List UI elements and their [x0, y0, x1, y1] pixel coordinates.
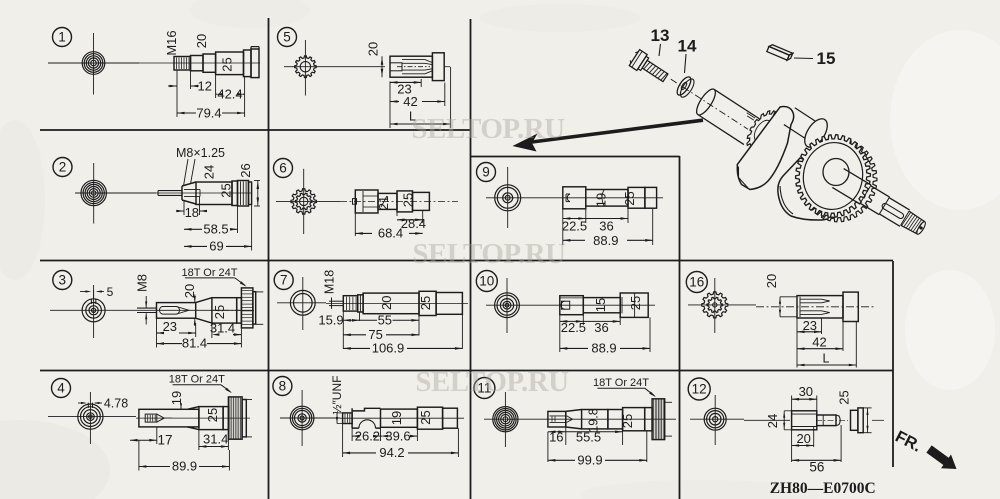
svg-text:19: 19	[169, 391, 184, 405]
svg-text:69: 69	[209, 239, 223, 254]
svg-text:20: 20	[796, 431, 810, 446]
svg-text:36: 36	[599, 219, 613, 234]
svg-text:89.9: 89.9	[172, 459, 197, 474]
svg-text:25: 25	[220, 57, 235, 71]
svg-text:68.4: 68.4	[378, 226, 403, 241]
svg-text:88.9: 88.9	[593, 233, 618, 248]
svg-text:9: 9	[482, 165, 490, 180]
svg-text:17: 17	[157, 432, 172, 447]
svg-text:25: 25	[212, 305, 227, 319]
svg-text:ZH80—E0700C: ZH80—E0700C	[770, 480, 876, 497]
svg-text:M8: M8	[135, 274, 150, 292]
svg-text:4.78: 4.78	[104, 397, 128, 411]
svg-text:22.5: 22.5	[561, 320, 586, 335]
svg-text:88.9: 88.9	[591, 341, 616, 356]
svg-text:22.5: 22.5	[562, 219, 587, 234]
svg-text:15: 15	[817, 49, 836, 68]
svg-text:16: 16	[689, 275, 704, 290]
svg-text:23: 23	[803, 318, 817, 333]
svg-text:26.2: 26.2	[355, 428, 380, 443]
svg-text:24: 24	[202, 165, 217, 179]
svg-text:25: 25	[628, 296, 643, 310]
svg-text:SELTOP.RU: SELTOP.RU	[415, 366, 569, 398]
svg-text:SELTOP.RU: SELTOP.RU	[412, 238, 566, 270]
svg-text:25: 25	[418, 296, 433, 310]
svg-text:5: 5	[107, 285, 114, 299]
svg-text:10: 10	[479, 274, 494, 289]
svg-text:25: 25	[401, 193, 416, 207]
svg-text:18T Or 24T: 18T Or 24T	[181, 267, 237, 279]
svg-text:3: 3	[59, 273, 67, 288]
svg-text:56: 56	[809, 459, 824, 474]
svg-text:18: 18	[185, 205, 199, 220]
svg-text:30: 30	[799, 384, 813, 399]
svg-text:36: 36	[594, 320, 608, 335]
svg-text:18T Or 24T: 18T Or 24T	[169, 374, 225, 386]
svg-text:28.4: 28.4	[401, 216, 426, 231]
svg-text:20: 20	[366, 42, 381, 56]
svg-text:M18: M18	[323, 270, 337, 294]
svg-text:12: 12	[198, 79, 212, 94]
svg-text:31.4: 31.4	[210, 321, 235, 336]
svg-text:½″UNF: ½″UNF	[330, 376, 344, 415]
svg-text:42: 42	[403, 94, 417, 109]
svg-text:42: 42	[812, 335, 826, 350]
svg-text:55.5: 55.5	[576, 430, 601, 445]
svg-text:16: 16	[549, 430, 563, 445]
svg-text:19: 19	[389, 411, 404, 425]
svg-text:SELTOP.RU: SELTOP.RU	[411, 113, 565, 145]
svg-text:20: 20	[764, 274, 779, 288]
svg-text:13: 13	[651, 26, 670, 45]
svg-text:5: 5	[283, 30, 291, 45]
svg-text:15: 15	[593, 298, 608, 312]
svg-text:106.9: 106.9	[372, 340, 405, 355]
svg-text:25: 25	[219, 183, 234, 197]
svg-text:25: 25	[622, 191, 637, 205]
svg-text:23: 23	[163, 319, 177, 334]
svg-text:4: 4	[57, 381, 65, 396]
svg-text:81.4: 81.4	[182, 336, 207, 351]
svg-text:24: 24	[765, 414, 780, 428]
svg-text:55: 55	[378, 312, 392, 327]
svg-text:58.5: 58.5	[203, 222, 228, 237]
svg-text:L: L	[823, 352, 830, 366]
svg-text:26: 26	[238, 163, 253, 177]
svg-text:M16: M16	[164, 30, 179, 55]
svg-text:42.4: 42.4	[217, 87, 242, 102]
svg-text:20: 20	[379, 295, 394, 309]
svg-text:25: 25	[837, 390, 852, 404]
svg-text:39.6: 39.6	[385, 428, 410, 443]
svg-text:7: 7	[280, 273, 288, 288]
svg-text:25: 25	[418, 410, 433, 424]
svg-text:6: 6	[279, 161, 287, 176]
svg-text:94.2: 94.2	[379, 445, 404, 460]
svg-text:99.9: 99.9	[577, 453, 602, 468]
svg-text:25: 25	[620, 414, 635, 428]
svg-text:1: 1	[58, 30, 66, 45]
svg-text:M8×1.25: M8×1.25	[176, 146, 225, 160]
svg-text:18T Or 24T: 18T Or 24T	[593, 377, 649, 389]
svg-text:20: 20	[194, 34, 209, 48]
svg-text:15.9: 15.9	[318, 312, 343, 327]
svg-text:21: 21	[376, 196, 391, 210]
svg-text:2: 2	[59, 160, 67, 175]
svg-text:14: 14	[678, 37, 697, 56]
svg-text:79.4: 79.4	[196, 106, 221, 121]
svg-text:8: 8	[279, 379, 287, 394]
svg-text:12: 12	[692, 382, 707, 397]
svg-text:31.4: 31.4	[203, 432, 228, 447]
svg-text:25: 25	[205, 408, 220, 422]
svg-text:19: 19	[594, 193, 609, 207]
